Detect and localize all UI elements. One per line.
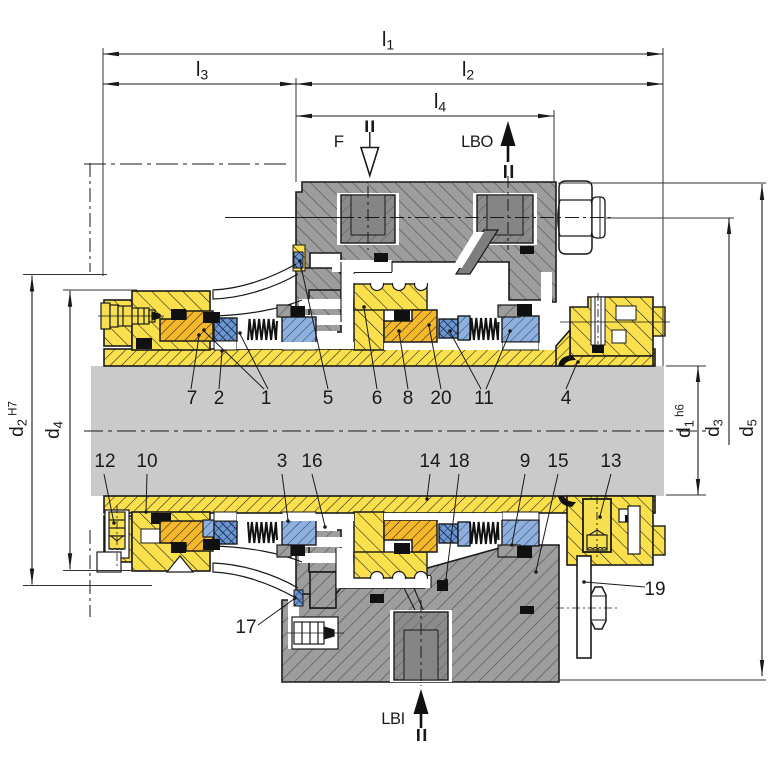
svg-text:15: 15 — [547, 451, 568, 472]
svg-text:2: 2 — [214, 388, 225, 409]
svg-text:18: 18 — [448, 451, 469, 472]
svg-text:20: 20 — [430, 388, 451, 409]
svg-text:1: 1 — [261, 388, 272, 409]
svg-text:LBO: LBO — [461, 133, 493, 151]
svg-text:10: 10 — [136, 451, 157, 472]
svg-text:19: 19 — [644, 579, 665, 600]
svg-text:6: 6 — [372, 388, 383, 409]
svg-text:17: 17 — [235, 617, 256, 638]
svg-text:13: 13 — [600, 451, 621, 472]
svg-text:5: 5 — [323, 388, 334, 409]
svg-text:3: 3 — [277, 451, 288, 472]
svg-text:8: 8 — [403, 388, 414, 409]
svg-text:11: 11 — [474, 388, 494, 409]
svg-text:12: 12 — [94, 451, 115, 472]
svg-text:16: 16 — [301, 451, 322, 472]
svg-text:9: 9 — [520, 451, 531, 472]
svg-text:LBI: LBI — [381, 710, 405, 728]
svg-text:14: 14 — [419, 451, 441, 472]
svg-text:7: 7 — [187, 388, 198, 409]
svg-text:F: F — [334, 132, 344, 151]
svg-text:4: 4 — [561, 388, 572, 409]
